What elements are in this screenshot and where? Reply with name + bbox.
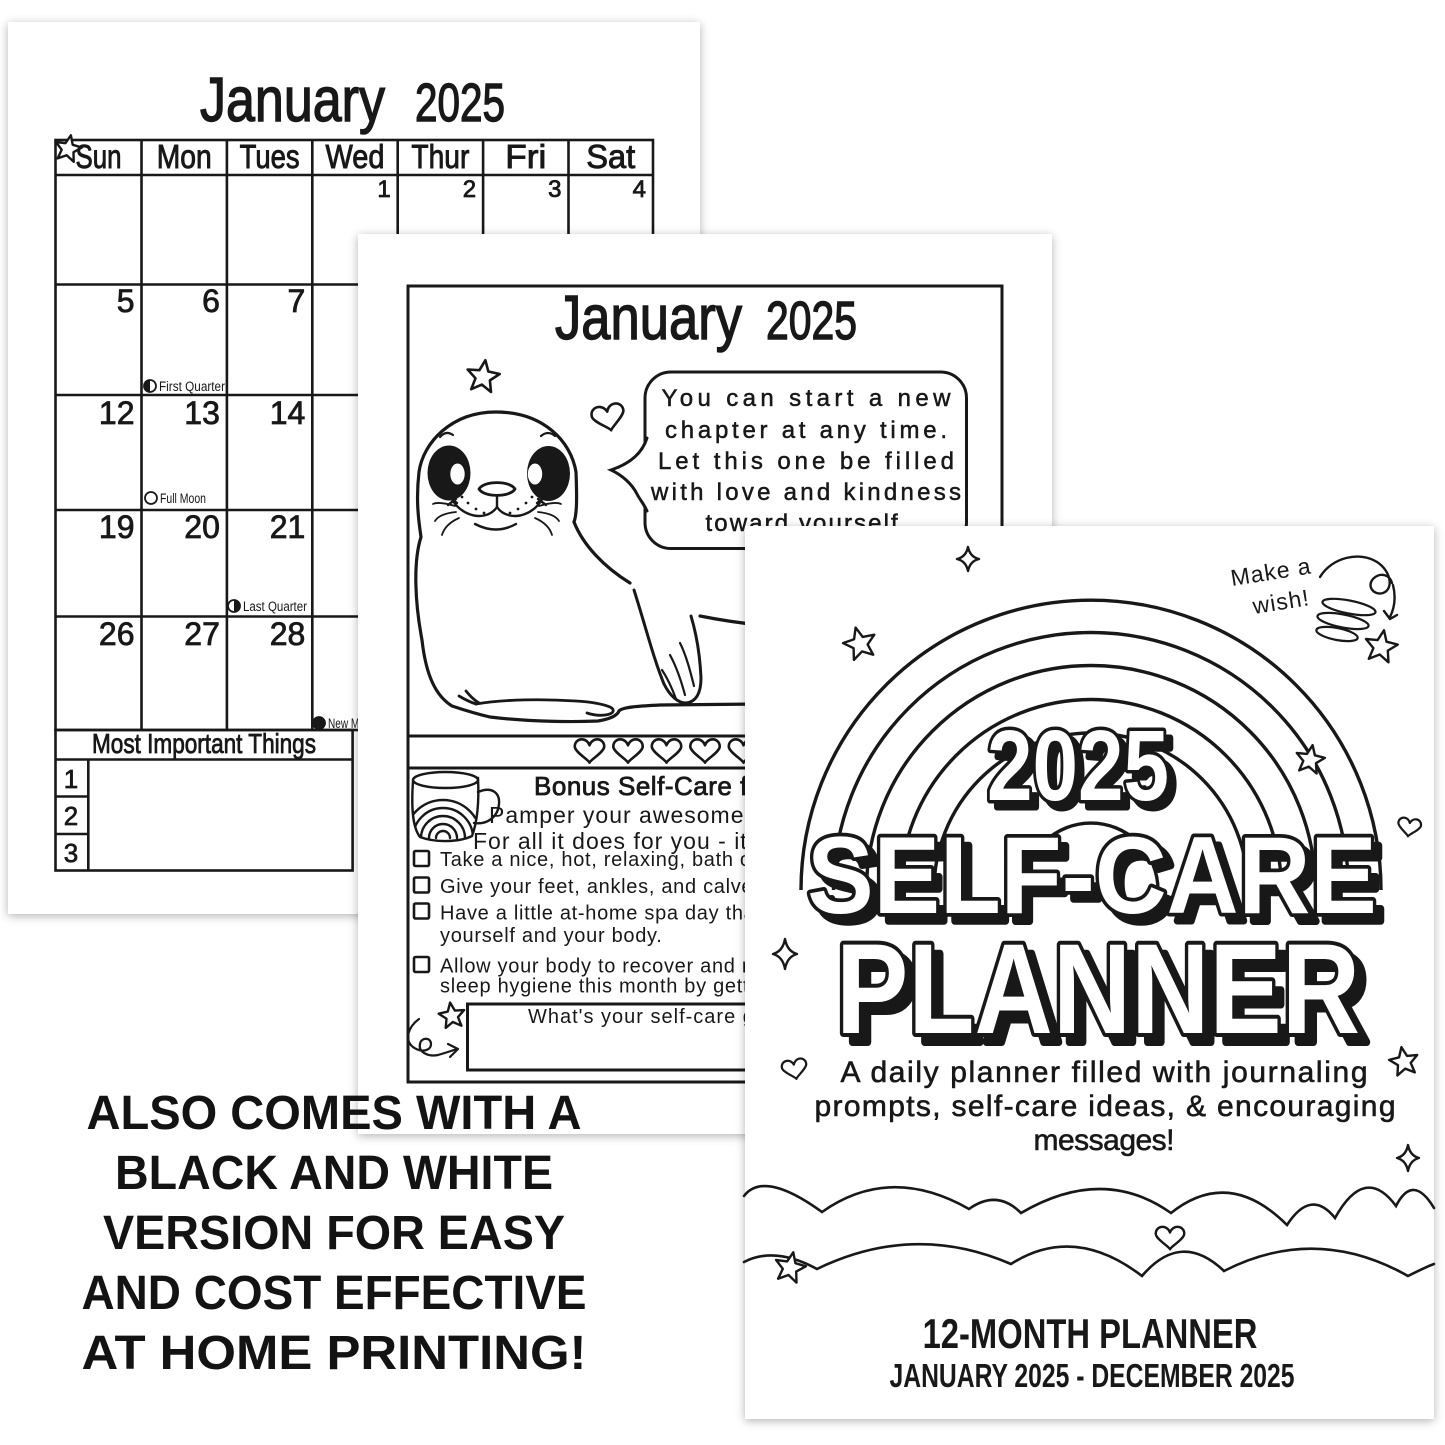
svg-text:BLACK AND WHITE: BLACK AND WHITE — [115, 1147, 553, 1200]
svg-text:AT HOME PRINTING!: AT HOME PRINTING! — [82, 1327, 587, 1380]
svg-text:ALSO COMES WITH A: ALSO COMES WITH A — [87, 1087, 582, 1140]
svg-text:VERSION FOR EASY: VERSION FOR EASY — [103, 1207, 565, 1260]
svg-text:AND COST EFFECTIVE: AND COST EFFECTIVE — [82, 1267, 587, 1320]
